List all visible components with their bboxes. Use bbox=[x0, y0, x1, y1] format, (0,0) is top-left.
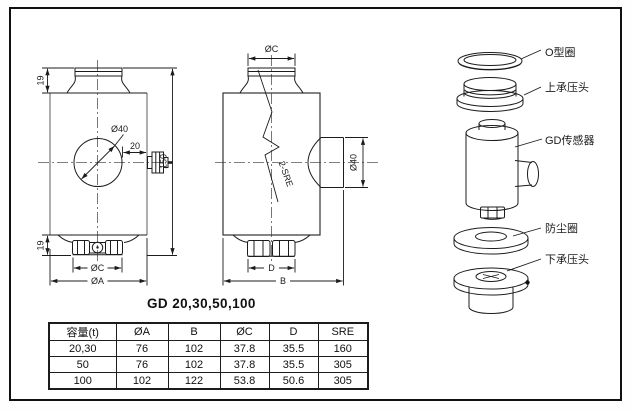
cell-d: 35.5 bbox=[269, 357, 318, 373]
cell-oa: 76 bbox=[116, 357, 168, 373]
table-row: 50 76 102 37.8 35.5 305 bbox=[49, 357, 368, 373]
table-row: 20,30 76 102 37.8 35.5 160 bbox=[49, 341, 368, 357]
dim-hole-dia: Ø40 bbox=[111, 124, 128, 134]
col-capacity: 容量(t) bbox=[49, 323, 116, 341]
o-ring-part bbox=[458, 53, 522, 70]
dim-side-d: D bbox=[268, 263, 275, 273]
label-lower-bearing-head: 下承压头 bbox=[545, 253, 589, 266]
cell-d: 35.5 bbox=[269, 341, 318, 357]
front-dimensions bbox=[42, 68, 177, 286]
table-header-row: 容量(t) ØA B ØC D SRE bbox=[49, 323, 368, 341]
front-body bbox=[42, 93, 147, 235]
cell-sre: 305 bbox=[318, 373, 368, 390]
cell-d: 50.6 bbox=[269, 373, 318, 390]
col-oa: ØA bbox=[116, 323, 168, 341]
cell-capacity: 20,30 bbox=[49, 341, 116, 357]
side-view: ØC 2-SRE Ø40 D B bbox=[215, 44, 378, 286]
dim-side-b: B bbox=[280, 276, 286, 286]
cell-oa: 76 bbox=[116, 341, 168, 357]
gd-sensor-part bbox=[466, 120, 539, 220]
dim-front-oa: ØA bbox=[91, 276, 104, 286]
label-upper-bearing-head: 上承压头 bbox=[545, 81, 589, 94]
drawing-title: GD 20,30,50,100 bbox=[147, 296, 256, 311]
label-gd-sensor: GD传感器 bbox=[545, 134, 595, 147]
spec-table: 容量(t) ØA B ØC D SRE 20,30 76 102 37.8 35… bbox=[48, 322, 369, 390]
label-dust-ring: 防尘圈 bbox=[545, 221, 578, 235]
dim-cap-height: 19 bbox=[36, 75, 46, 85]
exploded-view: O型圈 上承压头 GD传感器 防尘圈 下承压头 bbox=[454, 45, 595, 314]
dim-front-oc: ØC bbox=[91, 263, 105, 273]
table-row: 100 102 122 53.8 50.6 305 bbox=[49, 373, 368, 390]
datasheet-page: 19 150 Ø40 20 19 ØC ØA bbox=[0, 0, 633, 412]
cable-zigzag bbox=[258, 70, 279, 202]
front-view: 19 150 Ø40 20 19 ØC ØA bbox=[36, 60, 178, 286]
cell-b: 122 bbox=[168, 373, 220, 390]
cell-sre: 305 bbox=[318, 357, 368, 373]
cell-oc: 37.8 bbox=[220, 357, 269, 373]
dust-ring-part bbox=[454, 228, 528, 255]
cell-oc: 53.8 bbox=[220, 373, 269, 390]
label-o-ring: O型圈 bbox=[545, 45, 576, 59]
upper-bearing-head-part bbox=[457, 78, 523, 112]
front-base-assembly bbox=[58, 235, 139, 255]
cell-sre: 160 bbox=[318, 341, 368, 357]
dim-connector-len: 20 bbox=[130, 141, 140, 151]
cell-oc: 37.8 bbox=[220, 341, 269, 357]
dim-boss-dia: Ø40 bbox=[349, 154, 359, 171]
col-oc: ØC bbox=[220, 323, 269, 341]
dim-side-oc: ØC bbox=[265, 44, 279, 54]
col-d: D bbox=[269, 323, 318, 341]
col-b: B bbox=[168, 323, 220, 341]
cell-b: 102 bbox=[168, 341, 220, 357]
dim-total-height: 150 bbox=[159, 154, 169, 169]
cell-capacity: 100 bbox=[49, 373, 116, 390]
col-sre: SRE bbox=[318, 323, 368, 341]
cell-capacity: 50 bbox=[49, 357, 116, 373]
dim-base-height: 19 bbox=[36, 240, 46, 250]
cell-b: 102 bbox=[168, 357, 220, 373]
lower-bearing-head-part bbox=[454, 268, 530, 314]
front-hole bbox=[74, 135, 124, 187]
front-top-cap bbox=[67, 68, 130, 93]
front-centerlines bbox=[38, 60, 164, 268]
cable-label: 2-SRE bbox=[277, 160, 295, 188]
cell-oa: 102 bbox=[116, 373, 168, 390]
exploded-leaders bbox=[507, 50, 542, 271]
